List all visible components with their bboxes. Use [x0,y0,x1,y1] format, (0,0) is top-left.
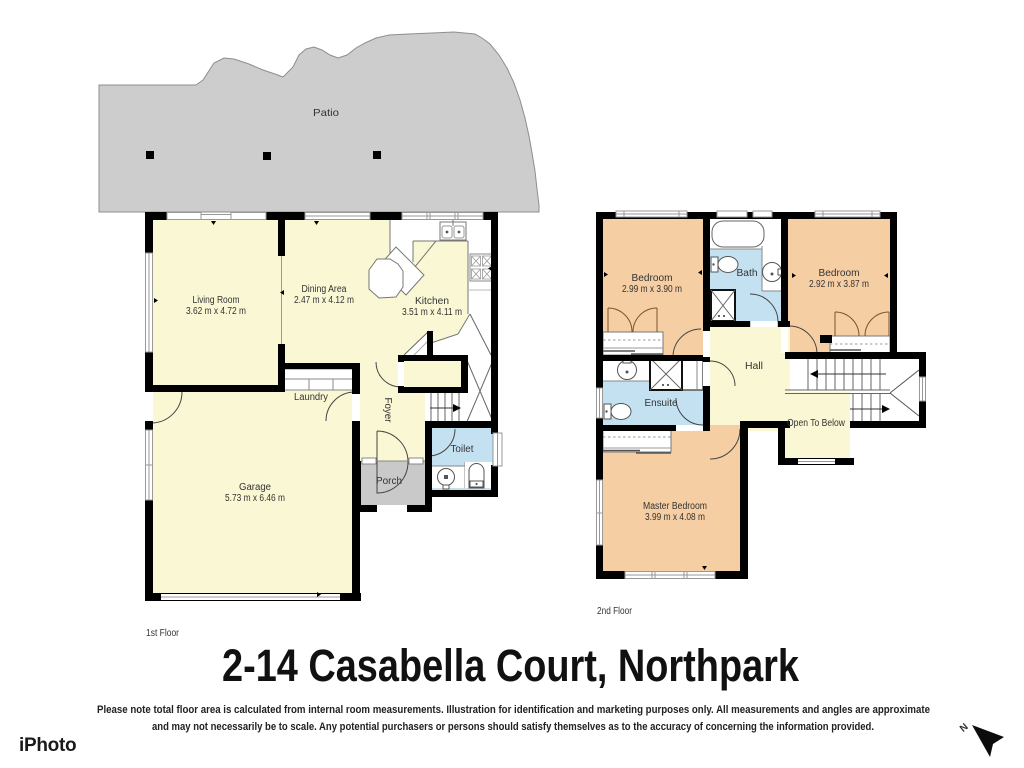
svg-text:Open To Below: Open To Below [787,418,846,429]
svg-text:Bath: Bath [737,268,758,279]
svg-text:2.99 m x 3.90 m: 2.99 m x 3.90 m [622,284,682,295]
svg-text:Porch: Porch [376,476,402,487]
svg-text:3.51 m x 4.11 m: 3.51 m x 4.11 m [402,307,462,318]
svg-text:2-14 Casabella Court, Northpar: 2-14 Casabella Court, Northpark [222,640,800,691]
svg-text:Hall: Hall [745,361,763,372]
svg-text:Patio: Patio [313,107,339,119]
svg-text:Bedroom: Bedroom [819,268,860,279]
svg-text:1st Floor: 1st Floor [146,628,180,639]
svg-text:Living Room: Living Room [193,295,240,306]
svg-text:Garage: Garage [239,482,271,493]
svg-text:2nd Floor: 2nd Floor [597,606,633,617]
svg-text:Laundry: Laundry [294,392,328,403]
svg-text:Ensuite: Ensuite [645,398,678,409]
svg-text:and may not necessarily be to: and may not necessarily be to scale. Any… [152,721,874,733]
svg-text:2.47 m x 4.12 m: 2.47 m x 4.12 m [294,295,354,306]
svg-text:iPhoto: iPhoto [19,735,76,756]
svg-text:3.62 m x 4.72 m: 3.62 m x 4.72 m [186,306,246,317]
svg-text:N: N [958,722,971,735]
svg-text:Kitchen: Kitchen [415,296,449,307]
svg-text:Foyer: Foyer [382,398,393,424]
svg-text:2.92 m x 3.87 m: 2.92 m x 3.87 m [809,279,869,290]
svg-text:Master Bedroom: Master Bedroom [643,501,707,512]
svg-text:3.99 m x 4.08 m: 3.99 m x 4.08 m [645,512,705,523]
svg-text:Bedroom: Bedroom [632,273,673,284]
svg-text:Toilet: Toilet [451,444,474,455]
svg-text:Please note total floor area i: Please note total floor area is calculat… [97,704,930,716]
svg-text:Dining Area: Dining Area [302,284,347,295]
svg-text:5.73 m x 6.46 m: 5.73 m x 6.46 m [225,493,285,504]
